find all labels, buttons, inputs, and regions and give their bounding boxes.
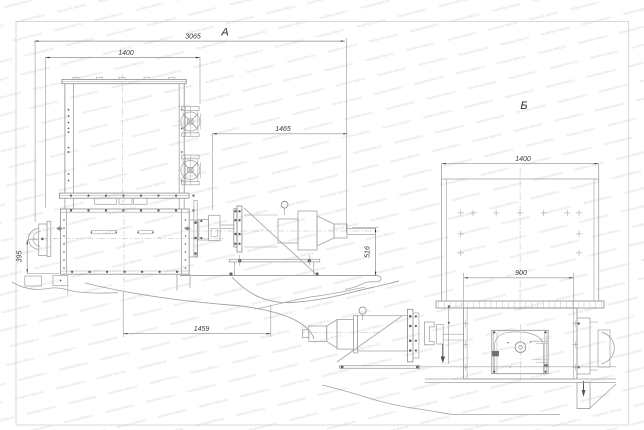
svg-text:Б: Б [520,100,527,112]
svg-text:3065: 3065 [185,34,201,41]
svg-text:900: 900 [515,270,527,277]
svg-text:1400: 1400 [515,156,531,163]
svg-text:1400: 1400 [118,50,134,57]
svg-text:1459: 1459 [194,326,210,333]
svg-text:395: 395 [17,251,24,263]
svg-text:516: 516 [365,246,372,258]
svg-text:A: A [220,27,228,39]
svg-text:1465: 1465 [275,126,291,133]
